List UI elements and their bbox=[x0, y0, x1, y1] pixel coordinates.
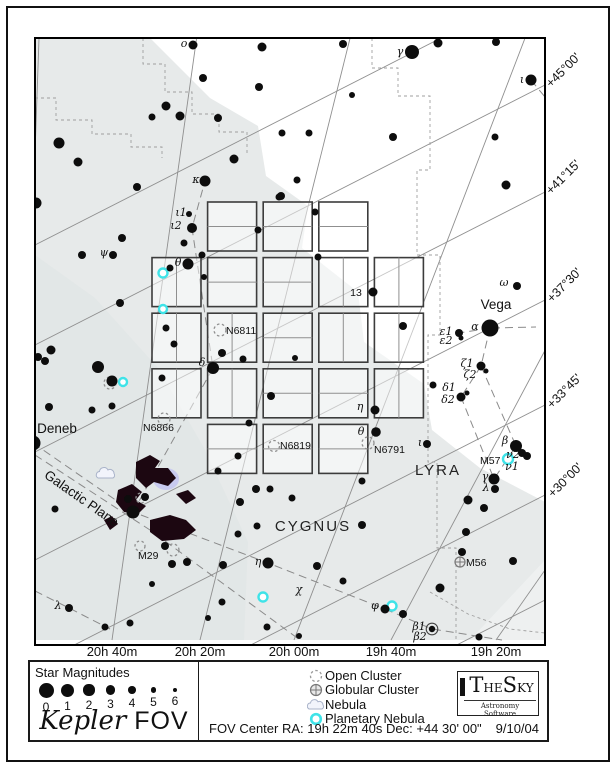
star bbox=[189, 41, 198, 50]
star bbox=[315, 254, 322, 261]
star bbox=[200, 176, 211, 187]
star bbox=[92, 361, 104, 373]
star bbox=[279, 130, 286, 137]
star bbox=[399, 322, 407, 330]
star-greek-label: φ bbox=[371, 599, 379, 612]
kepler-module bbox=[263, 202, 312, 251]
star bbox=[340, 578, 347, 585]
star-greek-label: ε2 bbox=[440, 334, 453, 347]
star-greek-label: η bbox=[357, 400, 364, 413]
star-greek-label: θ bbox=[175, 256, 182, 269]
star bbox=[124, 495, 132, 503]
star-greek-label: λ bbox=[54, 599, 62, 612]
planetary-nebula-icon bbox=[259, 593, 268, 602]
star bbox=[480, 504, 488, 512]
star bbox=[127, 620, 134, 627]
star bbox=[26, 436, 41, 451]
star-greek-label: ι bbox=[418, 436, 422, 449]
star bbox=[183, 259, 194, 270]
star bbox=[252, 485, 260, 493]
star bbox=[235, 531, 242, 538]
star bbox=[176, 112, 185, 121]
star bbox=[255, 83, 263, 91]
star bbox=[235, 453, 242, 460]
star bbox=[464, 496, 473, 505]
star-greek-label: ν1 bbox=[505, 460, 519, 473]
kepler-module bbox=[208, 424, 257, 473]
legend-left-panel: Star Magnitudes 0123456 Kepler FOV bbox=[30, 662, 198, 740]
star bbox=[47, 346, 56, 355]
star bbox=[526, 75, 537, 86]
star bbox=[489, 474, 500, 485]
star bbox=[482, 320, 499, 337]
kepler-module bbox=[208, 258, 257, 307]
star bbox=[476, 634, 483, 641]
dec-axis-label: +30°00' bbox=[545, 460, 585, 500]
star bbox=[339, 40, 347, 48]
constellation-label: LYRA bbox=[415, 462, 461, 479]
dec-axis-label: +41°15' bbox=[543, 157, 583, 197]
catalog-label: N6811 bbox=[226, 325, 256, 337]
star bbox=[236, 498, 244, 506]
chart-date: 9/10/04 bbox=[496, 721, 539, 736]
star bbox=[133, 183, 141, 191]
star bbox=[214, 114, 222, 122]
kepler-module bbox=[208, 313, 257, 362]
star bbox=[207, 362, 219, 374]
star bbox=[116, 299, 124, 307]
star bbox=[434, 39, 443, 48]
star-greek-label: ι2 bbox=[170, 219, 181, 232]
star bbox=[405, 45, 419, 59]
catalog-label: N6791 bbox=[374, 444, 405, 456]
star bbox=[183, 558, 191, 566]
star bbox=[381, 605, 390, 614]
star bbox=[127, 506, 140, 519]
star bbox=[65, 604, 73, 612]
star-greek-label: β2 bbox=[412, 630, 426, 643]
kepler-module bbox=[374, 369, 423, 418]
kepler-module bbox=[152, 313, 201, 362]
star-greek-label: β bbox=[501, 434, 508, 447]
star bbox=[41, 357, 49, 365]
star bbox=[45, 403, 53, 411]
star bbox=[171, 341, 178, 348]
planetary-nebula-icon bbox=[119, 378, 127, 386]
legend-panel: Star Magnitudes 0123456 Kepler FOV Open … bbox=[28, 660, 549, 742]
star bbox=[423, 440, 431, 448]
star bbox=[306, 130, 313, 137]
kepler-module bbox=[319, 313, 368, 362]
ra-axis-label: 19h 20m bbox=[471, 644, 522, 659]
star bbox=[358, 521, 366, 529]
star bbox=[457, 393, 466, 402]
star bbox=[109, 403, 116, 410]
kepler-module bbox=[319, 202, 368, 251]
star bbox=[484, 369, 489, 374]
star bbox=[78, 251, 86, 259]
thesky-logo: THESKY Astronomy Software bbox=[457, 671, 539, 716]
star-greek-label: ι1 bbox=[175, 206, 186, 219]
star-magnitudes-title: Star Magnitudes bbox=[35, 665, 130, 680]
star bbox=[371, 406, 380, 415]
star bbox=[219, 599, 226, 606]
constellation-figure-line bbox=[492, 327, 536, 328]
star bbox=[313, 562, 321, 570]
thesky-logo-text: THESKY bbox=[467, 673, 536, 697]
star bbox=[458, 548, 466, 556]
star-name-label: Vega bbox=[481, 297, 512, 312]
star bbox=[492, 134, 499, 141]
kepler-fov-chart-page: ογικι1ι2ψθδηθιωαε1ε2ζ1ζ2δ1δ2βν2ν1γληχφβ1… bbox=[0, 0, 616, 768]
star-greek-label: θ bbox=[358, 425, 365, 438]
star bbox=[52, 506, 59, 513]
star bbox=[215, 468, 222, 475]
star-greek-label: δ2 bbox=[441, 393, 455, 406]
star bbox=[107, 376, 118, 387]
star bbox=[219, 561, 227, 569]
star bbox=[389, 133, 397, 141]
star bbox=[371, 427, 381, 437]
star bbox=[492, 38, 500, 46]
star bbox=[369, 288, 378, 297]
star bbox=[89, 407, 96, 414]
star bbox=[161, 542, 169, 550]
star-greek-label: γ bbox=[397, 45, 404, 58]
star-greek-label: κ bbox=[191, 173, 200, 186]
kepler-module bbox=[263, 313, 312, 362]
catalog-label: M56 bbox=[466, 557, 487, 569]
kepler-module bbox=[374, 313, 423, 362]
star bbox=[74, 158, 83, 167]
star-greek-label: η bbox=[255, 555, 262, 568]
star bbox=[199, 74, 207, 82]
star bbox=[436, 584, 445, 593]
fov-center-readout: FOV Center RA: 19h 22m 40s Dec: +44 30' … bbox=[209, 721, 539, 736]
star bbox=[267, 486, 274, 493]
star bbox=[255, 227, 262, 234]
star bbox=[276, 194, 283, 201]
planetary-nebula-icon bbox=[159, 269, 168, 278]
ra-axis-label: 19h 40m bbox=[366, 644, 417, 659]
chart-title-fov: FOV bbox=[126, 707, 188, 735]
star-greek-label: ι bbox=[520, 73, 524, 86]
star-greek-label: ζ2 bbox=[464, 368, 477, 381]
star bbox=[359, 478, 366, 485]
star bbox=[264, 624, 271, 631]
kepler-module bbox=[374, 258, 423, 307]
star-name-label: Deneb bbox=[37, 421, 77, 436]
ra-axis-label: 20h 20m bbox=[175, 644, 226, 659]
star bbox=[205, 615, 211, 621]
star bbox=[289, 495, 296, 502]
globular-cluster-icon bbox=[455, 557, 465, 567]
star bbox=[399, 610, 407, 618]
thesky-logo-subtitle: Astronomy Software bbox=[464, 700, 536, 718]
star-greek-label: ω bbox=[500, 276, 509, 289]
dec-axis-label: +45°00' bbox=[543, 50, 583, 90]
chart-title-kepler: Kepler bbox=[39, 706, 126, 736]
thesky-logo-bar bbox=[460, 678, 465, 696]
star-chart: ογικι1ι2ψθδηθιωαε1ε2ζ1ζ2δ1δ2βν2ν1γληχφβ1… bbox=[0, 0, 616, 768]
star bbox=[149, 114, 156, 121]
star bbox=[246, 420, 253, 427]
star bbox=[181, 240, 188, 247]
star bbox=[163, 325, 170, 332]
star bbox=[254, 523, 261, 530]
dec-axis-label: +37°30' bbox=[544, 265, 584, 305]
star bbox=[258, 43, 267, 52]
star bbox=[294, 177, 301, 184]
ra-axis-label: 20h 40m bbox=[87, 644, 138, 659]
star bbox=[523, 452, 531, 460]
magnitude-step: 5 bbox=[144, 682, 164, 709]
star bbox=[459, 336, 464, 341]
star bbox=[167, 265, 174, 272]
star-greek-label: α bbox=[471, 320, 479, 333]
star-greek-label: ψ bbox=[100, 246, 109, 259]
star bbox=[109, 251, 117, 259]
star bbox=[296, 633, 302, 639]
star bbox=[240, 356, 247, 363]
kepler-module bbox=[208, 369, 257, 418]
star bbox=[187, 223, 197, 233]
legend-symbol-globular: Globular Cluster bbox=[307, 682, 419, 697]
magnitude-step: 6 bbox=[165, 682, 185, 708]
star bbox=[491, 485, 499, 493]
star bbox=[513, 282, 521, 290]
star bbox=[263, 558, 274, 569]
chart-title: Kepler FOV bbox=[30, 706, 198, 736]
star-greek-label: δ bbox=[199, 356, 206, 369]
star bbox=[168, 560, 176, 568]
star bbox=[509, 557, 517, 565]
star bbox=[312, 209, 319, 216]
star-greek-label: χ bbox=[295, 583, 304, 596]
star bbox=[462, 528, 470, 536]
catalog-label: M57 bbox=[480, 455, 501, 467]
star bbox=[141, 493, 149, 501]
constellation-label: CYGNUS bbox=[275, 518, 351, 535]
star bbox=[292, 355, 298, 361]
catalog-label: N6866 bbox=[143, 422, 174, 434]
kepler-module bbox=[319, 258, 368, 307]
star bbox=[230, 155, 239, 164]
star bbox=[349, 92, 355, 98]
kepler-module bbox=[208, 202, 257, 251]
dec-axis-label: +33°45' bbox=[544, 371, 584, 411]
star bbox=[54, 138, 65, 149]
catalog-label: M29 bbox=[138, 550, 159, 562]
star bbox=[162, 102, 171, 111]
planetary-nebula-icon bbox=[159, 305, 167, 313]
kepler-module bbox=[263, 258, 312, 307]
catalog-label: N6819 bbox=[280, 440, 311, 452]
star bbox=[430, 382, 437, 389]
legend-symbol-nebula: Nebula bbox=[307, 697, 366, 712]
star bbox=[159, 375, 166, 382]
star bbox=[477, 362, 486, 371]
star bbox=[465, 391, 470, 396]
star bbox=[267, 392, 275, 400]
star bbox=[201, 274, 207, 280]
star bbox=[118, 234, 126, 242]
legend-right-panel: Open ClusterGlobular ClusterNebulaPlanet… bbox=[199, 662, 547, 740]
star-greek-label: λ bbox=[482, 481, 490, 494]
star bbox=[218, 349, 226, 357]
star bbox=[199, 252, 206, 259]
legend-symbol-open: Open Cluster bbox=[307, 668, 402, 683]
ra-axis-label: 20h 00m bbox=[269, 644, 320, 659]
catalog-label: 13 bbox=[350, 287, 362, 299]
star bbox=[186, 211, 192, 217]
star bbox=[102, 624, 109, 631]
star bbox=[149, 581, 155, 587]
ra-grid-line bbox=[590, 38, 616, 640]
star bbox=[502, 181, 511, 190]
